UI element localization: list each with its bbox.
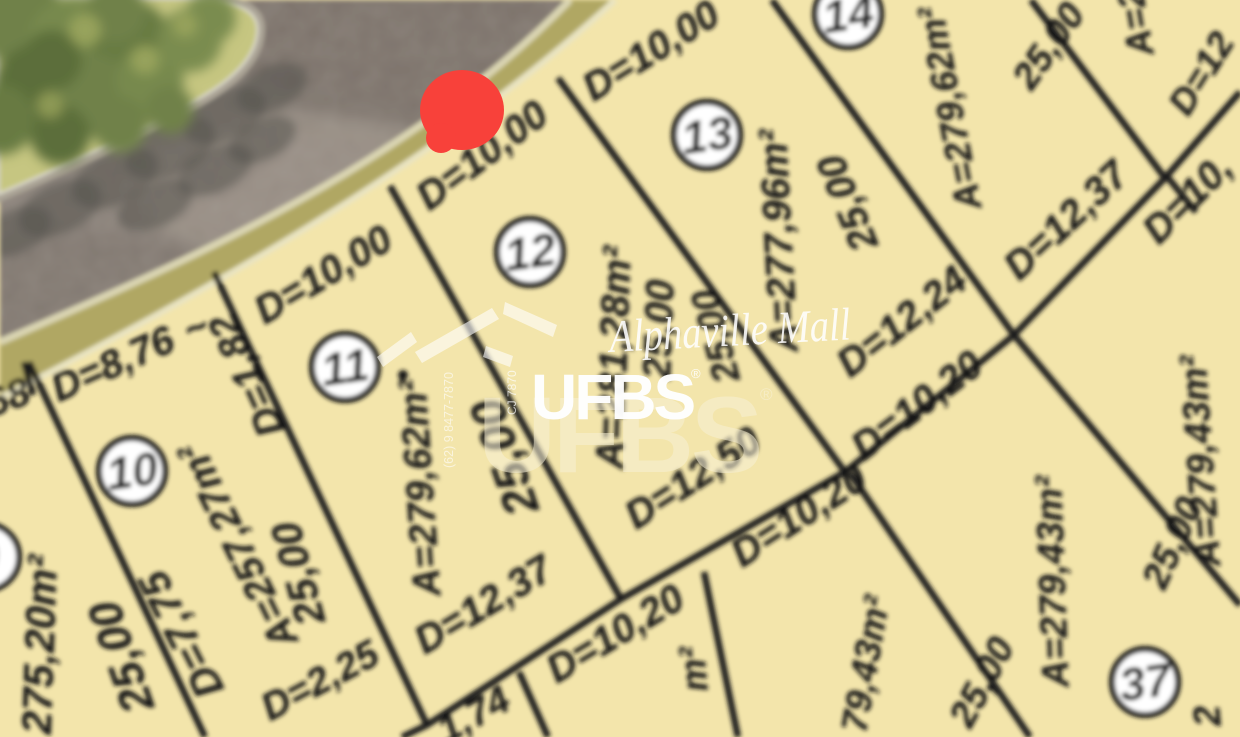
svg-text:A=279,43m²: A=279,43m² xyxy=(1028,473,1077,689)
svg-text:12: 12 xyxy=(501,223,559,282)
svg-text:11: 11 xyxy=(318,338,373,396)
svg-text:2: 2 xyxy=(1186,704,1230,730)
svg-text:275,20m²: 275,20m² xyxy=(13,553,66,736)
svg-text:13: 13 xyxy=(678,106,736,165)
svg-text:UFBS: UFBS xyxy=(531,361,695,433)
svg-text:14: 14 xyxy=(819,0,877,43)
svg-text:®: ® xyxy=(691,366,701,381)
svg-text:(62) 9 8477-7870: (62) 9 8477-7870 xyxy=(442,372,456,468)
svg-text:®: ® xyxy=(760,385,773,404)
svg-text:37: 37 xyxy=(1116,652,1176,711)
svg-text:m²: m² xyxy=(671,643,716,693)
svg-text:10: 10 xyxy=(103,442,161,501)
